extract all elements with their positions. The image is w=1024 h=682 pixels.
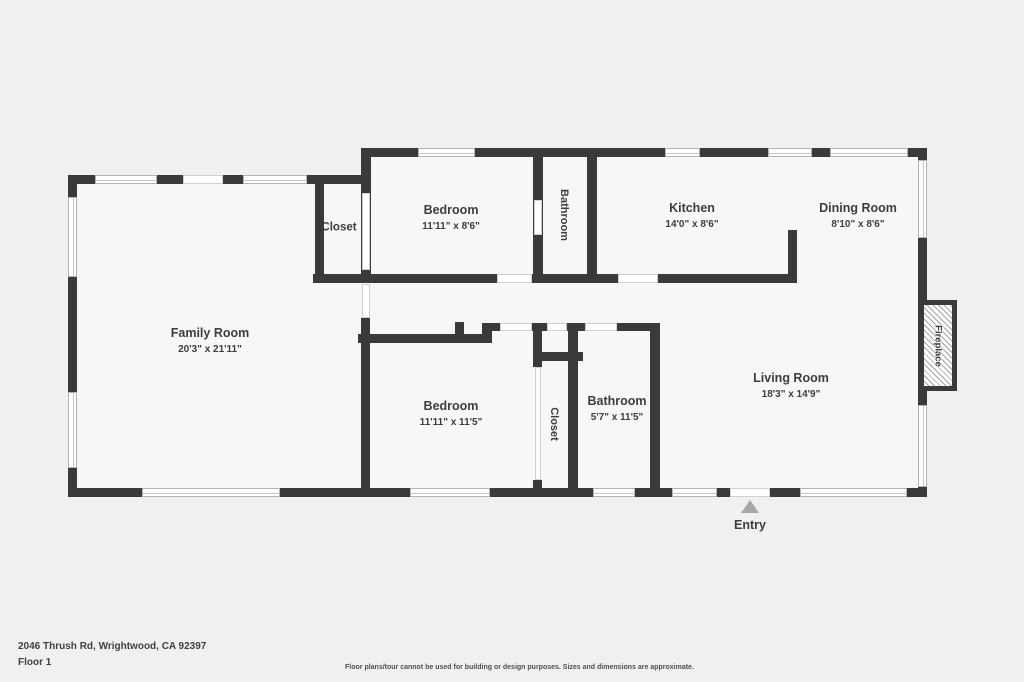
door-opening [183, 175, 223, 184]
room-label-bedroom-top: Bedroom 11'11" x 8'6" [422, 204, 480, 232]
disclaimer: Floor plans/tour cannot be used for buil… [345, 664, 694, 671]
wall [358, 334, 492, 343]
room-label-bathroom-top: Bathroom [558, 189, 570, 241]
room-label-closet-bottom: Closet [548, 407, 560, 441]
wall [650, 331, 660, 491]
room-label-family-room: Family Room 20'3" x 21'11" [171, 327, 250, 355]
window [68, 392, 77, 468]
window [243, 175, 307, 184]
door-opening [547, 323, 567, 331]
room-label-dining-room: Dining Room 8'10" x 8'6" [819, 202, 897, 230]
closet-sliding-door [535, 367, 541, 480]
window [68, 197, 77, 277]
window [410, 488, 490, 497]
window [593, 488, 635, 497]
room-label-living-room: Living Room 18'3" x 14'9" [753, 372, 829, 400]
window [95, 175, 157, 184]
wall [587, 155, 597, 280]
door-opening [618, 274, 658, 283]
wall [455, 322, 464, 335]
window [665, 148, 700, 157]
wall [361, 318, 370, 493]
wall [313, 274, 797, 283]
room-label-closet-top: Closet [321, 222, 356, 235]
floor-plan: Fireplace Family Room 20'3" x 21'11" Clo… [0, 0, 1024, 682]
wall [533, 480, 542, 493]
fireplace-label: Fireplace [933, 325, 944, 367]
window [672, 488, 717, 497]
door-opening [534, 200, 542, 235]
door-opening [500, 323, 532, 331]
fireplace: Fireplace [919, 300, 957, 391]
window [418, 148, 475, 157]
door-opening [497, 274, 532, 283]
door-opening [585, 323, 617, 331]
window [918, 160, 927, 238]
door-opening [362, 193, 370, 270]
floor-label: Floor 1 [18, 657, 51, 668]
wall [533, 331, 542, 367]
room-label-bathroom-bottom: Bathroom 5'7" x 11'5" [587, 395, 646, 423]
wall [788, 230, 797, 280]
window [768, 148, 812, 157]
room-label-bedroom-bottom: Bedroom 11'11" x 11'5" [420, 400, 483, 428]
window [142, 488, 280, 497]
entry-door-opening [730, 488, 770, 497]
window [830, 148, 908, 157]
door-opening [362, 284, 370, 318]
entry-label: Entry [734, 518, 766, 532]
entry-arrow-icon [741, 500, 759, 513]
window [918, 405, 927, 487]
window [800, 488, 907, 497]
address: 2046 Thrush Rd, Wrightwood, CA 92397 [18, 641, 206, 652]
wall [568, 331, 578, 491]
room-label-kitchen: Kitchen 14'0" x 8'6" [665, 202, 718, 230]
